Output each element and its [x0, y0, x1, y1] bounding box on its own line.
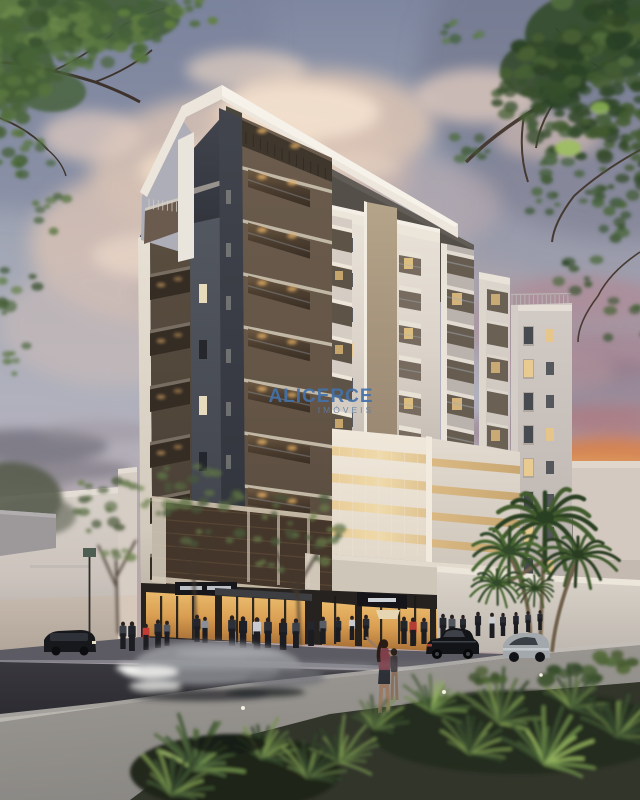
svg-text:ALICERCE: ALICERCE [268, 386, 373, 407]
svg-text:IMÓVEIS: IMÓVEIS [318, 405, 374, 415]
